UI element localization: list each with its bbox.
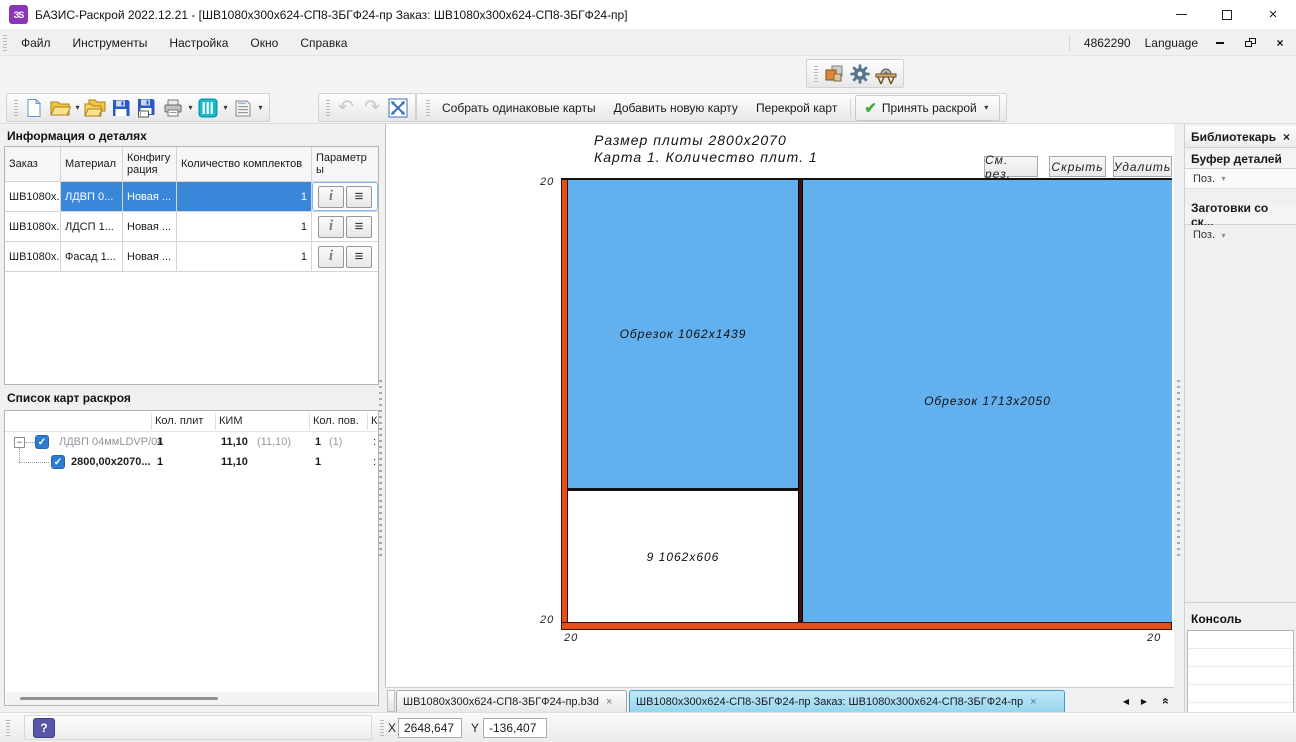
cell-config: Новая ... xyxy=(123,182,177,211)
minimize-icon[interactable] xyxy=(1158,0,1204,30)
status-help-panel: ? xyxy=(24,715,372,740)
toolbar-grip[interactable] xyxy=(380,720,384,736)
offcut-region-right[interactable]: Обрезок 1713х2050 xyxy=(803,180,1172,622)
app-icon: ЗS xyxy=(9,5,28,24)
menu-bar: Файл Инструменты Настройка Окно Справка … xyxy=(0,30,1296,56)
open-order-icon[interactable] xyxy=(82,95,108,121)
trim-dimension-label: 20 xyxy=(564,632,578,644)
chevron-down-icon: ▾ xyxy=(1219,231,1228,240)
menu-help[interactable]: Справка xyxy=(289,30,358,56)
filter-label: Поз. xyxy=(1193,173,1215,185)
tree-label: 2800,00x2070... xyxy=(71,456,151,468)
maps-panel-title: Список карт раскроя xyxy=(7,391,131,405)
part-label: 9 1062х606 xyxy=(647,550,720,564)
application-window: ЗS БАЗИС-Раскрой 2022.12.21 - [ШВ1080x30… xyxy=(0,0,1296,742)
checkbox-checked[interactable]: ✓ xyxy=(35,435,49,449)
column-header-qty[interactable]: Количество комплектов xyxy=(177,147,312,181)
cell-kim-extra: (11,10) xyxy=(257,436,291,448)
recut-maps-button[interactable]: Перекрой карт xyxy=(747,95,846,121)
report-icon[interactable] xyxy=(230,95,256,121)
mdi-minimize-icon[interactable] xyxy=(1212,35,1228,51)
toolbar-group-maps: Собрать одинаковые карты Добавить новую … xyxy=(416,93,1007,122)
tab-model[interactable]: ШВ1080x300x624-СП8-3БГФ24-пр.b3d × xyxy=(396,690,627,713)
maximize-icon[interactable] xyxy=(1204,0,1250,30)
toolbar-group-file: ▾ I ▾ ▾ ▾ xyxy=(6,93,270,122)
cell-k: : xyxy=(373,456,376,468)
details-panel: Информация о деталях Заказ Материал Конф… xyxy=(0,124,383,712)
cell-qty: 1 xyxy=(177,242,312,271)
buffer-section-header[interactable]: Буфер деталей xyxy=(1185,150,1296,169)
cell-material: ЛДВП 0... xyxy=(61,182,123,211)
tree-connector xyxy=(19,462,49,463)
buffer-filter[interactable]: Поз. ▾ xyxy=(1185,169,1296,189)
print-icon[interactable] xyxy=(160,95,186,121)
menu-settings[interactable]: Настройка xyxy=(158,30,239,56)
plate-size-label: Размер плиты 2800х2070 xyxy=(594,132,787,148)
fit-view-icon[interactable] xyxy=(385,95,411,121)
toolbar-grip[interactable] xyxy=(326,100,330,116)
table-row[interactable]: ШВ1080x... ЛДСП 1... Новая ... 1 i ≡ xyxy=(5,212,378,242)
chevron-down-icon: ▾ xyxy=(1219,174,1228,183)
toolbar-grip[interactable] xyxy=(3,35,7,51)
separator xyxy=(5,431,378,432)
add-new-map-button[interactable]: Добавить новую карту xyxy=(605,95,747,121)
details-panel-title: Информация о деталях xyxy=(7,129,147,143)
accept-dropdown-icon[interactable]: ▾ xyxy=(982,103,991,112)
plate-map-dropdown-icon[interactable]: ▾ xyxy=(221,103,230,112)
toolbar-row-main: ▾ I ▾ ▾ ▾ ↶ ↷ xyxy=(0,91,1296,124)
tab-scroll-left-icon[interactable]: ◀ xyxy=(1118,693,1134,709)
tree-connector xyxy=(19,448,20,462)
redo-icon: ↷ xyxy=(359,95,385,121)
details-table: Заказ Материал Конфигурация Количество к… xyxy=(4,146,379,385)
trim-dimension-label: 20 xyxy=(540,176,554,188)
cell-pov-extra: (1) xyxy=(329,436,342,448)
tab-close-icon[interactable]: × xyxy=(1030,696,1036,708)
trim-strip-bottom xyxy=(561,622,1172,630)
saw-table-icon[interactable] xyxy=(873,61,899,87)
column-header-material[interactable]: Материал xyxy=(61,147,123,181)
separator xyxy=(151,413,152,430)
buffer-title: Буфер деталей xyxy=(1191,152,1282,166)
blanks-section-header[interactable]: Заготовки со ск... xyxy=(1185,206,1296,225)
tab-cutting-active[interactable]: ШВ1080x300x624-СП8-3БГФ24-пр Заказ: ШВ10… xyxy=(629,690,1065,713)
save-icon[interactable] xyxy=(108,95,134,121)
toolbar-grip[interactable] xyxy=(814,66,818,82)
new-document-icon[interactable] xyxy=(21,95,47,121)
layers-icon[interactable] xyxy=(821,61,847,87)
params-menu-button[interactable]: ≡ xyxy=(346,186,372,208)
cell-config: Новая ... xyxy=(123,242,177,271)
accept-layout-button[interactable]: ✔ Принять раскрой ▾ xyxy=(855,95,999,121)
window-controls: × xyxy=(1158,0,1296,30)
column-header-config[interactable]: Конфигурация xyxy=(123,147,177,181)
delete-button[interactable]: Удалить xyxy=(1113,156,1172,177)
open-file-icon[interactable] xyxy=(47,95,73,121)
cell-material: Фасад 1... xyxy=(61,242,123,271)
cell-plates: 1 xyxy=(157,456,163,468)
x-coordinate-field[interactable]: 2648,647 xyxy=(398,718,462,738)
librarian-header: Библиотекарь × xyxy=(1185,126,1296,148)
tree-row-material[interactable]: − ✓ ЛДВП 04ммLDVP/04 1 11,10 (11,10) 1 (… xyxy=(5,433,378,452)
column-header-order[interactable]: Заказ xyxy=(5,147,61,181)
mdi-restore-icon[interactable] xyxy=(1242,35,1258,51)
blanks-filter[interactable]: Поз. ▾ xyxy=(1185,225,1296,245)
menu-right-area: 4862290 Language × xyxy=(1069,35,1296,51)
maps-tree: Кол. плит КИМ Кол. пов. К − ✓ ЛДВП 04ммL… xyxy=(4,410,379,706)
params-menu-button[interactable]: ≡ xyxy=(346,216,372,238)
info-button[interactable]: i xyxy=(318,246,344,268)
column-header-k[interactable]: К xyxy=(371,415,377,427)
cell-order: ШВ1080x... xyxy=(5,182,61,211)
cell-material: ЛДСП 1... xyxy=(61,212,123,241)
panel-splitter[interactable] xyxy=(379,380,382,560)
params-menu-button[interactable]: ≡ xyxy=(346,246,372,268)
info-button[interactable]: i xyxy=(318,186,344,208)
cutting-map-canvas[interactable]: Размер плиты 2800х2070 Карта 1. Количест… xyxy=(385,124,1174,687)
tab-label: ШВ1080x300x624-СП8-3БГФ24-пр.b3d xyxy=(403,696,599,708)
tree-label: ЛДВП 04ммLDVP/04 xyxy=(59,436,163,448)
print-dropdown-icon[interactable]: ▾ xyxy=(186,103,195,112)
separator xyxy=(1185,602,1296,603)
gear-icon[interactable] xyxy=(847,61,873,87)
show-cuts-button[interactable]: См. рез. xyxy=(984,156,1038,177)
offcut-region-left[interactable]: Обрезок 1062х1439 xyxy=(568,180,798,488)
trim-dimension-label: 20 xyxy=(540,614,554,626)
table-row[interactable]: ШВ1080x... Фасад 1... Новая ... 1 i ≡ xyxy=(5,242,378,272)
tab-strip-edge xyxy=(387,690,395,712)
tab-scroll-right-icon[interactable]: ▶ xyxy=(1136,693,1152,709)
cell-pov: 1 xyxy=(315,456,321,468)
column-header-params[interactable]: Параметры xyxy=(312,147,378,181)
column-header-pov[interactable]: Кол. пов. xyxy=(313,415,359,427)
librarian-title: Библиотекарь xyxy=(1191,130,1276,144)
cell-params: i ≡ xyxy=(312,242,378,271)
column-header-kim[interactable]: КИМ xyxy=(219,415,242,427)
report-dropdown-icon[interactable]: ▾ xyxy=(256,103,265,112)
document-tab-bar: ШВ1080x300x624-СП8-3БГФ24-пр.b3d × ШВ108… xyxy=(385,687,1174,712)
svg-text:I: I xyxy=(140,112,141,118)
menu-tools[interactable]: Инструменты xyxy=(62,30,159,56)
accept-check-icon: ✔ xyxy=(864,99,877,117)
mdi-close-icon[interactable]: × xyxy=(1272,35,1288,51)
checkbox-checked[interactable]: ✓ xyxy=(51,455,65,469)
separator xyxy=(309,413,310,430)
offcut-label: Обрезок 1713х2050 xyxy=(924,394,1051,408)
tab-collapse-icon[interactable]: « xyxy=(1158,693,1174,709)
cell-order: ШВ1080x... xyxy=(5,212,61,241)
accept-label: Принять раскрой xyxy=(882,101,977,115)
collapse-node-icon[interactable]: − xyxy=(14,437,25,448)
y-coordinate-field[interactable]: -136,407 xyxy=(483,718,547,738)
save-as-icon[interactable]: I xyxy=(134,95,160,121)
filter-label: Поз. xyxy=(1193,229,1215,241)
separator xyxy=(215,413,216,430)
map-number-label: Карта 1. Количество плит. 1 xyxy=(594,149,818,165)
toolbar-group-edit: ↶ ↷ xyxy=(318,93,416,122)
info-button[interactable]: i xyxy=(318,216,344,238)
cell-kim: 11,10 xyxy=(221,456,248,468)
toolbar-group-settings xyxy=(806,59,904,88)
details-table-header: Заказ Материал Конфигурация Количество к… xyxy=(5,147,378,182)
separator xyxy=(850,98,851,118)
separator xyxy=(367,413,368,430)
panel-splitter[interactable] xyxy=(1174,124,1184,712)
offcut-label: Обрезок 1062х1439 xyxy=(620,327,747,341)
trim-strip-left xyxy=(561,180,568,622)
console-title: Консоль xyxy=(1191,612,1242,626)
cell-pov: 1 xyxy=(315,436,321,448)
close-icon[interactable]: × xyxy=(1250,0,1296,30)
tree-row-map[interactable]: ✓ 2800,00x2070... 1 11,10 1 : xyxy=(5,452,378,471)
toolbar-grip[interactable] xyxy=(6,720,10,736)
menu-window[interactable]: Окно xyxy=(239,30,289,56)
open-file-dropdown-icon[interactable]: ▾ xyxy=(73,103,82,112)
scrollbar-thumb[interactable] xyxy=(20,697,218,700)
undo-icon: ↶ xyxy=(333,95,359,121)
tab-label: ШВ1080x300x624-СП8-3БГФ24-пр Заказ: ШВ10… xyxy=(636,696,1023,708)
cell-kim: 11,10 xyxy=(221,436,248,448)
toolbar-grip[interactable] xyxy=(14,100,18,116)
librarian-panel: Библиотекарь × Буфер деталей Поз. ▾ Заго… xyxy=(1184,124,1296,742)
plate-drawing[interactable]: Обрезок 1062х1439 9 1062х606 Обрезок 171… xyxy=(561,178,1172,630)
separator xyxy=(1069,35,1070,51)
table-row[interactable]: ШВ1080x... ЛДВП 0... Новая ... 1 i ≡ xyxy=(5,182,378,212)
horizontal-scrollbar[interactable] xyxy=(6,692,377,705)
cell-params: i ≡ xyxy=(312,212,378,241)
help-button[interactable]: ? xyxy=(33,718,55,738)
toolbar-row-top xyxy=(0,56,1296,91)
cell-k: : xyxy=(373,436,376,448)
language-menu[interactable]: Language xyxy=(1145,36,1198,50)
plate-map-icon[interactable] xyxy=(195,95,221,121)
cell-qty: 1 xyxy=(177,212,312,241)
tree-connector xyxy=(25,442,35,443)
cell-params: i ≡ xyxy=(312,182,378,211)
cell-plates: 1 xyxy=(157,436,163,448)
menu-file[interactable]: Файл xyxy=(10,30,62,56)
toolbar-grip[interactable] xyxy=(426,100,430,116)
license-counter: 4862290 xyxy=(1084,36,1131,50)
panel-close-icon[interactable]: × xyxy=(1283,130,1290,144)
cell-order: ШВ1080x... xyxy=(5,242,61,271)
status-bar: ? X 2648,647 Y -136,407 xyxy=(0,712,1296,742)
column-header-plates[interactable]: Кол. плит xyxy=(155,415,203,427)
collect-identical-maps-button[interactable]: Собрать одинаковые карты xyxy=(433,95,605,121)
cell-config: Новая ... xyxy=(123,212,177,241)
part-region[interactable]: 9 1062х606 xyxy=(568,491,798,622)
y-coordinate-label: Y xyxy=(471,721,479,735)
hide-button[interactable]: Скрыть xyxy=(1049,156,1106,177)
window-title: БАЗИС-Раскрой 2022.12.21 - [ШВ1080x300x6… xyxy=(35,8,628,22)
cell-qty: 1 xyxy=(177,182,312,211)
title-bar: ЗS БАЗИС-Раскрой 2022.12.21 - [ШВ1080x30… xyxy=(0,0,1296,30)
x-coordinate-label: X xyxy=(388,721,396,735)
trim-dimension-label: 20 xyxy=(1147,632,1161,644)
tab-close-icon[interactable]: × xyxy=(606,696,612,708)
